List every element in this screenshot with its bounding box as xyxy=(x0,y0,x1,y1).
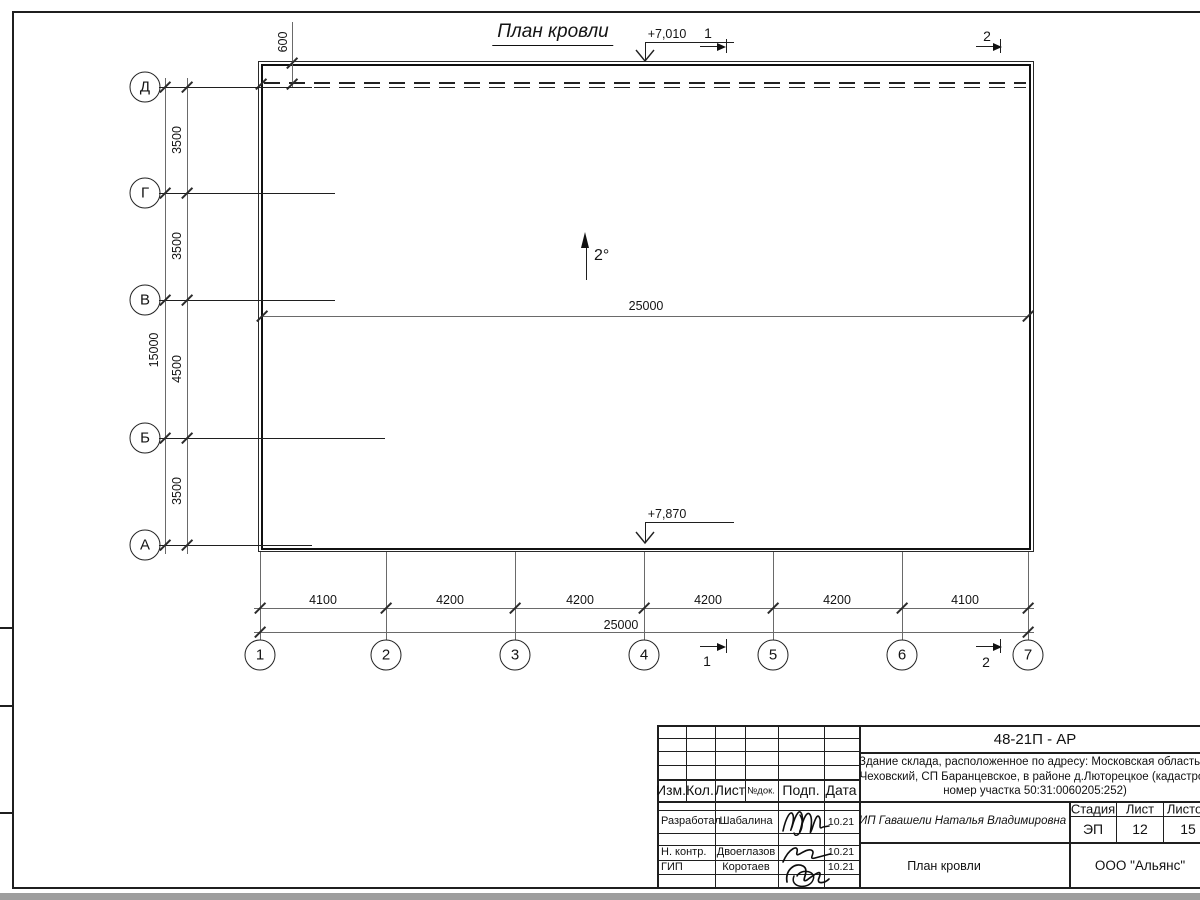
section-mark-bar xyxy=(1000,639,1001,653)
stamp-col-ndok: №док. xyxy=(747,786,775,797)
stamp-line xyxy=(1163,801,1164,842)
row-dim-label: 3500 xyxy=(170,232,184,260)
roof-width-label: 25000 xyxy=(629,299,664,313)
margin-tick xyxy=(0,627,12,629)
sheet-count: 15 xyxy=(1180,821,1196,837)
axis-label: А xyxy=(140,537,150,554)
page-title: План кровли xyxy=(492,21,613,43)
axis-circle-6: 6 xyxy=(887,640,918,671)
axis-label: 5 xyxy=(769,647,777,664)
staff-role: Н. контр. xyxy=(661,846,706,858)
stage-value: ЭП xyxy=(1083,821,1103,837)
stamp-line xyxy=(859,752,1200,754)
ext-line xyxy=(644,552,645,640)
ext-line xyxy=(1028,552,1029,640)
margin-tick xyxy=(0,812,12,814)
section-mark-1-bottom-line xyxy=(700,646,718,647)
stamp-col-izm: Изм. xyxy=(656,782,686,798)
staff-role: Разработал xyxy=(661,815,721,827)
address-line: Чеховский, СП Баранцевское, в районе д.Л… xyxy=(859,770,1200,785)
section-mark-bar xyxy=(726,639,727,653)
section-mark-2-top-label: 2 xyxy=(983,28,991,44)
section-mark-bar xyxy=(726,39,727,53)
ext-line xyxy=(515,552,516,640)
page-edge xyxy=(0,893,1200,900)
frame-bottom xyxy=(12,887,1200,889)
axis-circle-v: В xyxy=(130,285,161,316)
address-line: Здание склада, расположенное по адресу: … xyxy=(859,755,1200,770)
row-dim-label: 4500 xyxy=(170,355,184,383)
section-arrow-icon xyxy=(717,643,726,651)
col-dim-label: 4200 xyxy=(823,593,851,607)
section-mark-1-bottom-label: 1 xyxy=(703,653,711,669)
drawing-sheet: План кровли 25000 2° +7,010 +7,870 1 2 1… xyxy=(0,0,1200,900)
dim-line-left-segments xyxy=(187,78,188,554)
staff-name: Двоеглазов xyxy=(717,846,775,858)
dim-line-bottom-total xyxy=(254,632,1034,633)
col-dim-label: 4200 xyxy=(566,593,594,607)
client-name: ИП Гавашели Наталья Владимировна xyxy=(859,815,1029,827)
elevation-top-arrow xyxy=(634,49,656,63)
stamp-line xyxy=(715,725,716,888)
stamp-line xyxy=(657,779,859,781)
doc-code: 48-21П - АР xyxy=(859,731,1200,748)
stage-col-label: Лист xyxy=(1126,802,1154,817)
axis-circle-2: 2 xyxy=(371,640,402,671)
elevation-bottom-arrow xyxy=(634,531,656,545)
section-mark-2-bottom-label: 2 xyxy=(982,654,990,670)
axis-label: В xyxy=(140,292,150,309)
col-total-label: 25000 xyxy=(604,618,639,632)
slope-arrow-line xyxy=(586,246,587,280)
ext-line xyxy=(260,552,261,640)
col-dim-label: 4100 xyxy=(951,593,979,607)
axis-circle-g: Г xyxy=(130,178,161,209)
axis-circle-1: 1 xyxy=(245,640,276,671)
axis-label: 4 xyxy=(640,647,648,664)
stage-col-label: Стадия xyxy=(1071,802,1115,817)
axis-label: Д xyxy=(140,79,150,96)
stamp-line xyxy=(657,751,859,752)
stamp-line xyxy=(657,801,1200,803)
margin-tick xyxy=(0,705,12,707)
company-name: ООО "Альянс" xyxy=(1069,858,1200,873)
row-dim-label: 3500 xyxy=(170,477,184,505)
axis-label: Г xyxy=(141,185,149,202)
stamp-col-data: Дата xyxy=(825,782,856,798)
stamp-line xyxy=(657,738,859,739)
section-mark-2-top-line xyxy=(976,46,994,47)
address-line: номер участка 50:31:0060205:252) xyxy=(859,784,1200,799)
stage-col-label: Листов xyxy=(1167,802,1200,817)
stamp-col-list: Лист xyxy=(715,782,745,798)
stamp-col-kol: Кол. xyxy=(686,782,714,798)
axis-label: 6 xyxy=(898,647,906,664)
dim-600-label: 600 xyxy=(276,32,290,53)
elevation-bottom-leader xyxy=(645,522,734,523)
frame-top xyxy=(12,11,1200,13)
stamp-line xyxy=(657,765,859,766)
roof-mid-line xyxy=(262,316,1028,317)
axis-circle-b: Б xyxy=(130,423,161,454)
frame-left xyxy=(12,11,14,888)
axis-circle-a: А xyxy=(130,530,161,561)
staff-name: Шабалина xyxy=(719,815,772,827)
page-title-text: План кровли xyxy=(492,21,613,46)
stamp-col-podp: Подп. xyxy=(782,782,819,798)
staff-date: 10.21 xyxy=(828,816,854,828)
object-address: Здание склада, расположенное по адресу: … xyxy=(859,755,1200,799)
stamp-border xyxy=(657,725,1200,727)
col-dim-label: 4200 xyxy=(436,593,464,607)
signature-scribble xyxy=(780,803,830,843)
signature-scribble xyxy=(779,840,833,888)
section-mark-1-top-line xyxy=(700,46,718,47)
section-arrow-icon xyxy=(717,43,726,51)
axis-label: Б xyxy=(140,430,150,447)
slope-arrow-head xyxy=(581,232,589,248)
parapet-dashed-line xyxy=(264,82,1026,84)
stamp-border xyxy=(657,725,659,888)
staff-role: ГИП xyxy=(661,861,683,873)
axis-circle-5: 5 xyxy=(758,640,789,671)
slope-label: 2° xyxy=(594,247,609,265)
elevation-bottom-label: +7,870 xyxy=(648,507,687,521)
axis-circle-d: Д xyxy=(130,72,161,103)
axis-label: 3 xyxy=(511,647,519,664)
stamp-line xyxy=(1116,801,1117,842)
sheet-name: План кровли xyxy=(859,859,1029,873)
axis-label: 2 xyxy=(382,647,390,664)
sheet-number: 12 xyxy=(1132,821,1148,837)
axis-circle-4: 4 xyxy=(629,640,660,671)
axis-label: 1 xyxy=(256,647,264,664)
stamp-line xyxy=(859,842,1200,844)
axis-label: 7 xyxy=(1024,647,1032,664)
axis-circle-7: 7 xyxy=(1013,640,1044,671)
axis-line xyxy=(159,438,385,439)
col-dim-label: 4200 xyxy=(694,593,722,607)
ext-line-600 xyxy=(292,22,293,87)
section-mark-2-bottom-line xyxy=(976,646,994,647)
axis-circle-3: 3 xyxy=(500,640,531,671)
axis-line xyxy=(159,87,312,88)
ext-line xyxy=(386,552,387,640)
col-dim-label: 4100 xyxy=(309,593,337,607)
axis-line xyxy=(159,545,312,546)
row-total-label: 15000 xyxy=(147,333,161,368)
section-mark-bar xyxy=(1000,39,1001,53)
row-dim-label: 3500 xyxy=(170,126,184,154)
elevation-top-label: +7,010 xyxy=(648,27,687,41)
parapet-dashed-line xyxy=(264,87,1026,89)
ext-line xyxy=(902,552,903,640)
section-mark-1-top-label: 1 xyxy=(704,25,712,41)
dim-line-left-total xyxy=(165,78,166,554)
staff-name: Коротаев xyxy=(722,861,770,873)
ext-line xyxy=(773,552,774,640)
